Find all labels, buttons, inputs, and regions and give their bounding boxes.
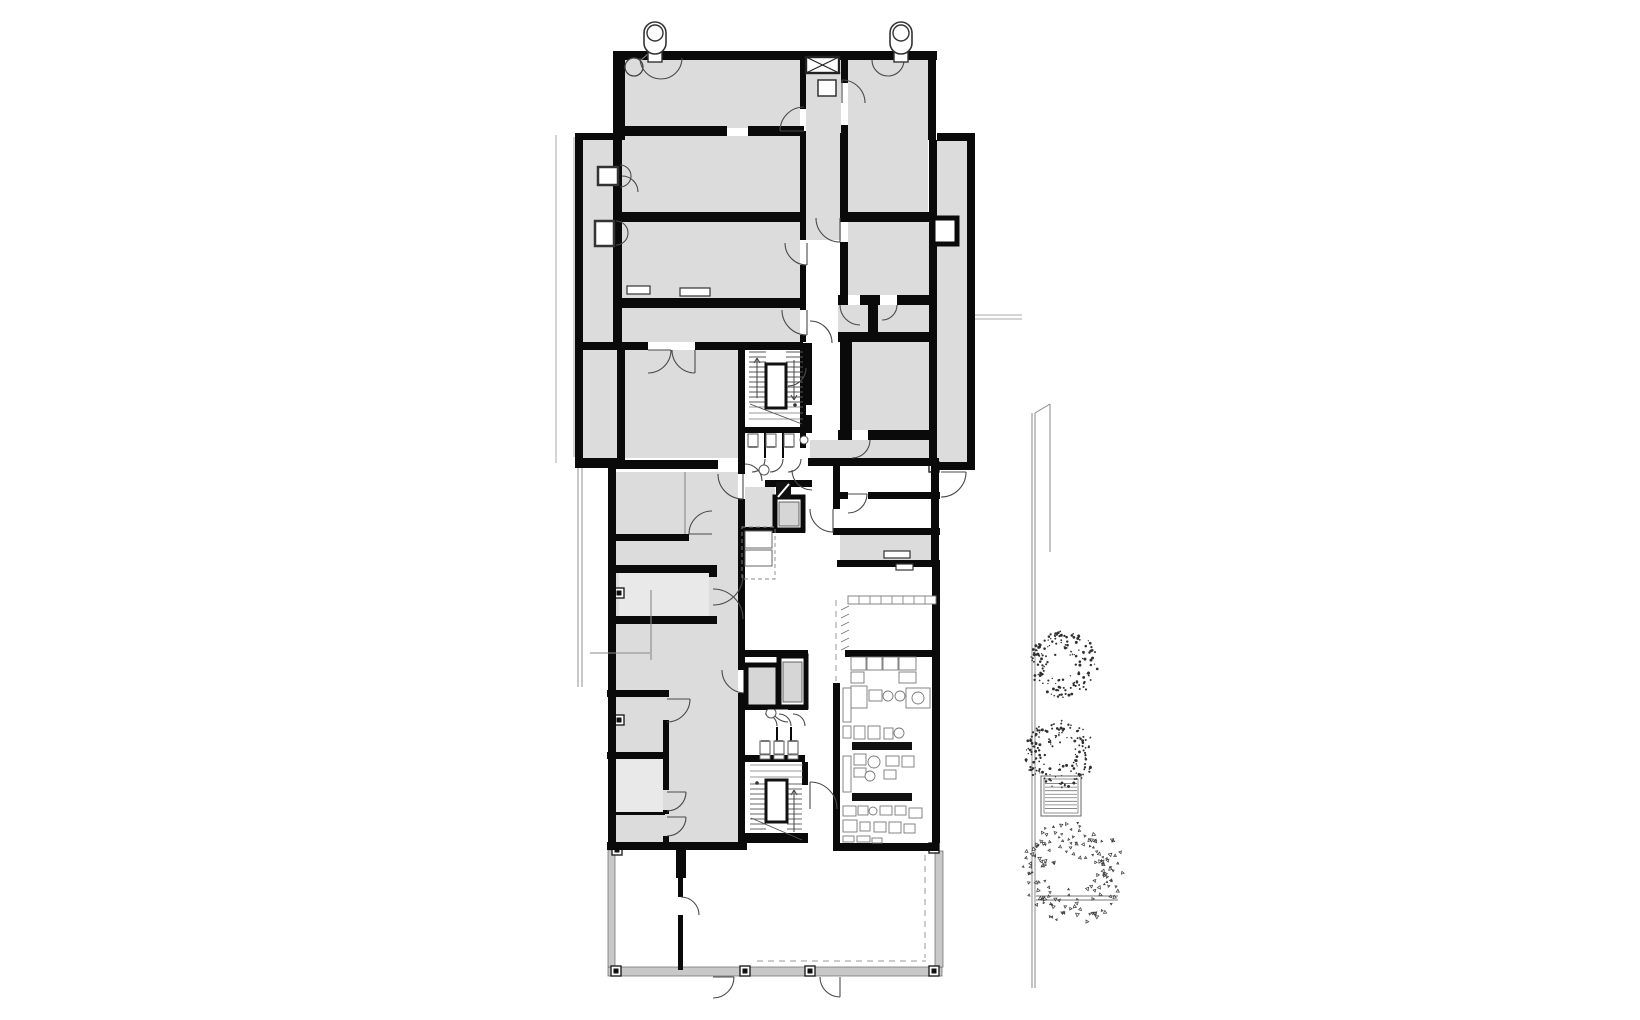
tree-leaf bbox=[1070, 828, 1072, 830]
wall bbox=[578, 342, 648, 350]
tree-speck bbox=[1079, 660, 1082, 663]
tree-speck bbox=[1078, 751, 1081, 754]
wall bbox=[840, 242, 848, 295]
tree-speck bbox=[1039, 772, 1040, 773]
tree-speck bbox=[1094, 663, 1095, 664]
tree-speck bbox=[1032, 761, 1035, 764]
kitchen-unit bbox=[858, 806, 868, 815]
tree-speck bbox=[1032, 774, 1034, 776]
tree-speck bbox=[1054, 654, 1056, 656]
tree-speck bbox=[1048, 639, 1049, 640]
tree-leaf bbox=[1110, 903, 1112, 905]
kitchen-unit bbox=[857, 836, 870, 842]
tree-leaf bbox=[1108, 885, 1110, 887]
tree-speck bbox=[1071, 764, 1074, 767]
tree-speck bbox=[1046, 730, 1049, 733]
tree-speck bbox=[1033, 679, 1035, 681]
tree-speck bbox=[1057, 679, 1059, 681]
wall bbox=[837, 560, 940, 567]
tree-leaf bbox=[1092, 846, 1094, 848]
wall bbox=[868, 295, 878, 335]
wall bbox=[841, 51, 848, 83]
kitchen-unit bbox=[869, 690, 882, 701]
tree-speck bbox=[1078, 773, 1081, 776]
tree-leaf bbox=[1038, 857, 1042, 860]
door-arc bbox=[793, 714, 805, 726]
tree-speck bbox=[1033, 661, 1035, 663]
tree-speck bbox=[1042, 682, 1044, 684]
toilet-fixture bbox=[788, 741, 798, 754]
wall bbox=[738, 342, 745, 460]
room-fills bbox=[583, 60, 967, 843]
tree-speck bbox=[1076, 755, 1079, 758]
tree-speck bbox=[1073, 767, 1076, 770]
kitchen-unit bbox=[760, 755, 770, 759]
tree-speck bbox=[1089, 650, 1092, 653]
tree-speck bbox=[1059, 694, 1061, 696]
tree-leaf bbox=[1079, 825, 1081, 827]
tree-speck bbox=[1054, 638, 1056, 640]
wall bbox=[868, 492, 940, 499]
tree-speck bbox=[1048, 741, 1050, 743]
tree-speck bbox=[1072, 782, 1075, 785]
tree-leaf bbox=[1061, 833, 1063, 835]
kitchen-unit bbox=[880, 806, 892, 815]
tree-speck bbox=[1026, 739, 1029, 742]
tree-speck bbox=[1054, 632, 1056, 634]
tree-speck bbox=[1083, 653, 1084, 654]
wall bbox=[611, 812, 665, 815]
tree-leaf bbox=[1115, 886, 1117, 888]
kitchen-burner bbox=[869, 807, 877, 815]
room-fill bbox=[613, 759, 663, 812]
tree-speck bbox=[1074, 682, 1076, 684]
kitchen-unit bbox=[886, 756, 899, 766]
wall bbox=[808, 458, 939, 466]
tree-speck bbox=[1029, 739, 1032, 742]
tree-speck bbox=[1056, 727, 1059, 730]
tree-speck bbox=[1074, 759, 1076, 761]
tree-speck bbox=[1036, 729, 1039, 732]
tree-leaf bbox=[1097, 852, 1100, 855]
tree-speck bbox=[1073, 762, 1075, 764]
tree-leaf bbox=[1093, 889, 1096, 892]
wall bbox=[805, 415, 812, 427]
wall bbox=[617, 126, 727, 136]
wall bbox=[663, 836, 669, 842]
wall bbox=[663, 720, 669, 752]
tree-leaf bbox=[1109, 867, 1112, 870]
tree-speck bbox=[1041, 664, 1043, 666]
tree-leaf bbox=[1068, 894, 1070, 896]
tree-speck bbox=[1071, 635, 1073, 637]
tree-leaf bbox=[1097, 874, 1100, 877]
tree-speck bbox=[1070, 687, 1072, 689]
tree-speck bbox=[1038, 743, 1041, 746]
tree-speck bbox=[1037, 653, 1040, 656]
door-arc bbox=[810, 321, 832, 343]
tree-speck bbox=[1041, 653, 1042, 654]
tree-speck bbox=[1060, 723, 1062, 725]
tree-speck bbox=[1061, 720, 1063, 722]
room-fill bbox=[583, 350, 738, 458]
column-core bbox=[932, 969, 937, 974]
kitchen-unit bbox=[904, 824, 915, 833]
tree-speck bbox=[1067, 785, 1070, 788]
tree-speck bbox=[1079, 639, 1081, 641]
tree-leaf bbox=[1065, 851, 1067, 853]
tree-speck bbox=[1082, 676, 1085, 679]
tree-leaf bbox=[1086, 887, 1089, 890]
tree-leaf bbox=[1066, 822, 1069, 825]
tree-leaf bbox=[1101, 869, 1104, 872]
tree-speck bbox=[1035, 757, 1037, 759]
wall bbox=[937, 462, 975, 470]
wall bbox=[678, 915, 683, 970]
wall bbox=[608, 465, 616, 850]
tree-speck bbox=[1057, 631, 1060, 634]
tree-speck bbox=[1029, 749, 1032, 752]
wall bbox=[611, 534, 689, 541]
tree-speck bbox=[1031, 660, 1033, 662]
tree-speck bbox=[1055, 737, 1056, 738]
tree-speck bbox=[1046, 690, 1049, 693]
tree-speck bbox=[1076, 772, 1077, 773]
tree-speck bbox=[1035, 742, 1038, 745]
tree-leaf bbox=[1090, 885, 1093, 888]
tree-speck bbox=[1038, 643, 1040, 645]
fixture-box bbox=[598, 167, 618, 185]
tree-speck bbox=[1090, 646, 1092, 648]
tree-speck bbox=[1070, 724, 1072, 726]
tree-speck bbox=[1034, 674, 1037, 677]
tree-speck bbox=[1078, 649, 1079, 650]
tree-speck bbox=[1051, 693, 1052, 694]
tree-speck bbox=[1025, 758, 1028, 761]
tree-speck bbox=[1055, 643, 1057, 645]
tree-speck bbox=[1078, 744, 1080, 746]
tree-speck bbox=[1038, 749, 1040, 751]
tree-speck bbox=[1047, 646, 1048, 647]
tree-speck bbox=[1040, 657, 1043, 660]
kitchen-unit bbox=[854, 768, 866, 777]
fixture-box bbox=[595, 221, 614, 246]
tree-speck bbox=[1075, 641, 1078, 644]
tree-speck bbox=[1058, 735, 1059, 736]
kitchen-unit bbox=[851, 686, 867, 708]
tree-leaf bbox=[1079, 908, 1082, 911]
room-fill bbox=[622, 136, 800, 212]
tree-speck bbox=[1051, 745, 1053, 747]
tree-speck bbox=[1064, 646, 1065, 647]
wall bbox=[868, 430, 933, 440]
tree-speck bbox=[1063, 635, 1065, 637]
wall bbox=[738, 693, 745, 843]
wall bbox=[840, 212, 935, 222]
wall bbox=[833, 528, 840, 535]
tree-speck bbox=[1072, 654, 1074, 656]
tree-speck bbox=[1079, 688, 1081, 690]
tree-leaf bbox=[1047, 886, 1049, 889]
tree-speck bbox=[1055, 735, 1057, 737]
toilet-fixture bbox=[760, 741, 770, 754]
wall bbox=[833, 462, 840, 509]
tree-speck bbox=[1088, 674, 1090, 676]
tree-leaf bbox=[1025, 856, 1028, 859]
fixture-box bbox=[818, 80, 836, 96]
tree-speck bbox=[1082, 658, 1083, 659]
tree-speck bbox=[1083, 681, 1085, 683]
kitchen-unit bbox=[843, 806, 856, 816]
tree-speck bbox=[1060, 639, 1062, 641]
wall bbox=[929, 140, 937, 462]
kitchen-burner bbox=[868, 756, 880, 768]
tree-speck bbox=[1060, 693, 1062, 695]
tree-leaf bbox=[1061, 840, 1063, 842]
tree-leaf bbox=[1028, 894, 1030, 896]
tree-speck bbox=[1085, 688, 1087, 690]
tree-speck bbox=[1032, 768, 1034, 770]
tree-speck bbox=[1078, 684, 1080, 686]
tree-speck bbox=[1048, 635, 1051, 638]
room-fill bbox=[613, 815, 663, 842]
kitchen-unit bbox=[774, 755, 784, 759]
tree-speck bbox=[1083, 686, 1085, 688]
kitchen-unit bbox=[909, 808, 922, 818]
tree-speck bbox=[1028, 753, 1029, 754]
elevator-car bbox=[783, 662, 802, 702]
tree-speck bbox=[1038, 726, 1040, 728]
wall bbox=[745, 833, 808, 843]
kitchen-unit bbox=[854, 726, 865, 739]
tree-leaf bbox=[1101, 910, 1103, 912]
room-fill bbox=[838, 305, 868, 332]
tree-speck bbox=[1070, 651, 1072, 653]
tree-leaf bbox=[1089, 845, 1091, 847]
tree-speck bbox=[1085, 757, 1086, 758]
column-core bbox=[614, 969, 619, 974]
room-fill bbox=[848, 60, 928, 212]
tree-speck bbox=[1090, 659, 1093, 662]
wall bbox=[833, 843, 939, 851]
tree-speck bbox=[1033, 652, 1035, 654]
door-arc bbox=[788, 459, 801, 472]
kitchen-unit bbox=[895, 806, 906, 815]
tree-leaf bbox=[1052, 906, 1055, 909]
tree-speck bbox=[1073, 740, 1076, 743]
tree-speck bbox=[1043, 647, 1046, 650]
tree-speck bbox=[1042, 654, 1044, 656]
kitchen-unit bbox=[889, 822, 901, 833]
tree-leaf bbox=[1070, 907, 1072, 910]
tree-speck bbox=[1047, 683, 1048, 684]
wall bbox=[838, 295, 848, 305]
tree-leaf bbox=[1116, 889, 1119, 892]
kitchen-unit bbox=[843, 836, 854, 842]
tree-speck bbox=[1088, 771, 1090, 773]
wall bbox=[932, 566, 940, 843]
tree-leaf bbox=[1099, 893, 1102, 896]
tree-leaf bbox=[1051, 904, 1053, 906]
wall bbox=[738, 460, 745, 474]
tree-leaf bbox=[1085, 856, 1087, 858]
wall bbox=[840, 342, 852, 437]
kitchen-unit bbox=[884, 770, 896, 779]
kitchen-unit bbox=[860, 822, 870, 831]
tree-speck bbox=[1069, 654, 1071, 656]
tree-leaf bbox=[1078, 856, 1081, 859]
wall bbox=[841, 125, 848, 133]
tree-speck bbox=[1084, 763, 1086, 765]
tree-leaf bbox=[1106, 876, 1108, 879]
tree-speck bbox=[1084, 766, 1086, 768]
tree-speck bbox=[1090, 664, 1092, 666]
tree-speck bbox=[1059, 741, 1061, 743]
hatch-line bbox=[841, 622, 849, 626]
tree-leaf bbox=[1096, 851, 1098, 853]
tree-speck bbox=[1064, 689, 1066, 691]
tree-speck bbox=[1055, 683, 1056, 684]
tree-speck bbox=[1059, 686, 1061, 688]
kitchen-unit bbox=[851, 657, 866, 670]
tree-speck bbox=[1058, 732, 1059, 733]
wall bbox=[833, 683, 840, 843]
tree-speck bbox=[1085, 758, 1088, 761]
tree-speck bbox=[1065, 644, 1067, 646]
kitchen-unit bbox=[868, 726, 880, 739]
kitchen-burner bbox=[865, 771, 875, 781]
tree-speck bbox=[1035, 735, 1037, 737]
wall bbox=[745, 427, 812, 433]
tree-speck bbox=[1083, 658, 1086, 661]
column-core bbox=[617, 718, 622, 723]
tree-speck bbox=[1058, 769, 1060, 771]
door-arc bbox=[770, 459, 783, 472]
tree-speck bbox=[1039, 729, 1041, 731]
tree-speck bbox=[1085, 739, 1087, 741]
elevator-lower-a bbox=[746, 665, 778, 707]
room-fill bbox=[619, 573, 709, 616]
tree-speck bbox=[1066, 640, 1068, 642]
kitchen-counter bbox=[852, 742, 912, 750]
tree-speck bbox=[1045, 663, 1047, 665]
door-arc bbox=[681, 897, 699, 915]
tree-leaf bbox=[1048, 849, 1050, 852]
tree-speck bbox=[1072, 633, 1074, 635]
tree-speck bbox=[1048, 738, 1050, 740]
tree-speck bbox=[1037, 747, 1039, 749]
wall bbox=[840, 492, 848, 499]
wall bbox=[745, 343, 812, 350]
curtain-wall-sill bbox=[935, 851, 943, 967]
tree-speck bbox=[1035, 767, 1036, 768]
tree-speck bbox=[1075, 663, 1077, 665]
tree-speck bbox=[1045, 655, 1047, 657]
tree-speck bbox=[1053, 695, 1055, 697]
kitchen-unit bbox=[843, 726, 851, 738]
duct-box bbox=[933, 218, 957, 244]
tree-leaf bbox=[1070, 842, 1072, 844]
tree-speck bbox=[1034, 773, 1036, 775]
tree-speck bbox=[1064, 784, 1066, 786]
tree-speck bbox=[1037, 674, 1039, 676]
tree-speck bbox=[1076, 763, 1078, 765]
tree-speck bbox=[1055, 776, 1056, 777]
tree-speck bbox=[1046, 661, 1048, 663]
tree-speck bbox=[1096, 668, 1099, 671]
tree-speck bbox=[1061, 781, 1064, 784]
door-arc bbox=[941, 472, 966, 497]
tree-speck bbox=[1038, 770, 1040, 772]
tree-leaf bbox=[1101, 840, 1103, 842]
tree-speck bbox=[1030, 751, 1032, 753]
sink-basin bbox=[759, 465, 769, 475]
fixture-box bbox=[896, 564, 913, 570]
tree-leaf bbox=[1105, 872, 1108, 875]
vent-circle bbox=[893, 25, 909, 41]
wall bbox=[967, 133, 975, 470]
tree-speck bbox=[1031, 736, 1033, 738]
tree-speck bbox=[1084, 754, 1086, 756]
tree-speck bbox=[1075, 748, 1077, 750]
wall bbox=[613, 460, 718, 469]
tree-leaf bbox=[1104, 883, 1106, 884]
tree-leaf bbox=[1054, 832, 1057, 835]
hatch-line bbox=[841, 606, 849, 610]
tree-speck bbox=[1078, 664, 1081, 667]
tree-leaf bbox=[1059, 845, 1062, 848]
tree-speck bbox=[1082, 745, 1084, 747]
tree-leaf bbox=[1104, 910, 1107, 913]
tree-speck bbox=[1066, 737, 1067, 738]
tree-leaf bbox=[1056, 919, 1058, 921]
kitchen-burner bbox=[883, 691, 893, 701]
tree-speck bbox=[1088, 640, 1089, 641]
tree-speck bbox=[1061, 732, 1063, 734]
tree-speck bbox=[1073, 684, 1075, 686]
tree-speck bbox=[1032, 657, 1034, 659]
tree-speck bbox=[1067, 694, 1070, 697]
tree-speck bbox=[1028, 769, 1030, 771]
tree-speck bbox=[1030, 656, 1031, 657]
tree-leaf bbox=[1084, 835, 1086, 837]
tree-speck bbox=[1082, 736, 1084, 738]
stairs bbox=[749, 352, 803, 840]
hatch-line bbox=[841, 630, 849, 634]
tree-leaf bbox=[1064, 906, 1067, 908]
tree-leaf bbox=[1022, 866, 1024, 868]
tree-speck bbox=[1032, 648, 1035, 651]
tree-speck bbox=[1044, 777, 1046, 779]
tree-speck bbox=[1032, 731, 1034, 733]
tree-leaf bbox=[1112, 870, 1114, 872]
tree-speck bbox=[1076, 680, 1079, 683]
tree-leaf bbox=[1038, 881, 1040, 883]
kitchen-unit bbox=[899, 672, 916, 683]
wall bbox=[931, 466, 939, 566]
wall bbox=[928, 51, 936, 140]
room-fill bbox=[806, 72, 841, 240]
kitchen-unit bbox=[843, 756, 851, 792]
tree-speck bbox=[1036, 770, 1038, 772]
tree-speck bbox=[1063, 687, 1065, 689]
wall bbox=[800, 131, 806, 240]
tree-speck bbox=[1058, 635, 1060, 637]
tree-speck bbox=[1061, 787, 1063, 789]
tree-speck bbox=[1074, 654, 1075, 655]
stair-dot bbox=[793, 403, 797, 407]
tree-speck bbox=[1039, 768, 1041, 770]
